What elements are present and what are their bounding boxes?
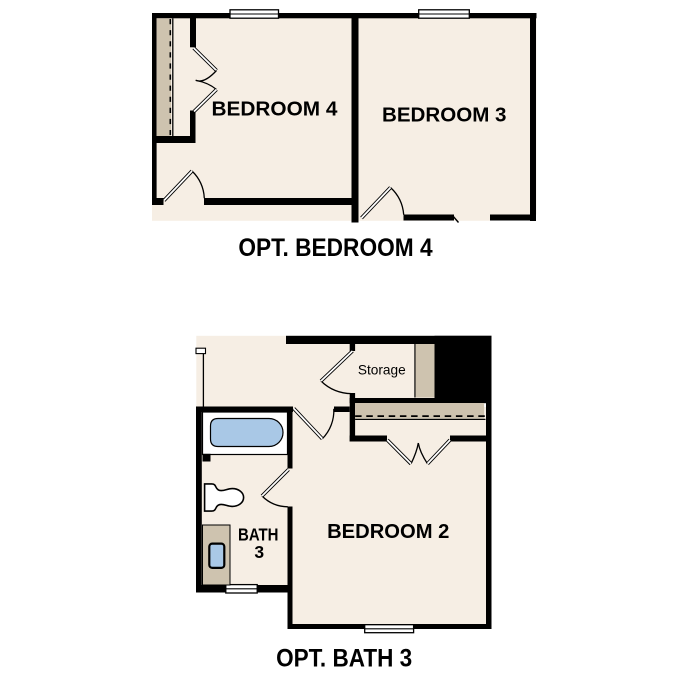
- svg-text:Storage: Storage: [358, 361, 406, 377]
- svg-text:OPT. BATH 3: OPT. BATH 3: [276, 645, 412, 673]
- svg-text:BEDROOM 3: BEDROOM 3: [382, 103, 507, 126]
- svg-text:BEDROOM 2: BEDROOM 2: [327, 520, 449, 543]
- svg-text:OPT. BEDROOM 4: OPT. BEDROOM 4: [238, 234, 432, 262]
- svg-text:BEDROOM 4: BEDROOM 4: [212, 97, 339, 120]
- svg-text:3: 3: [254, 542, 264, 562]
